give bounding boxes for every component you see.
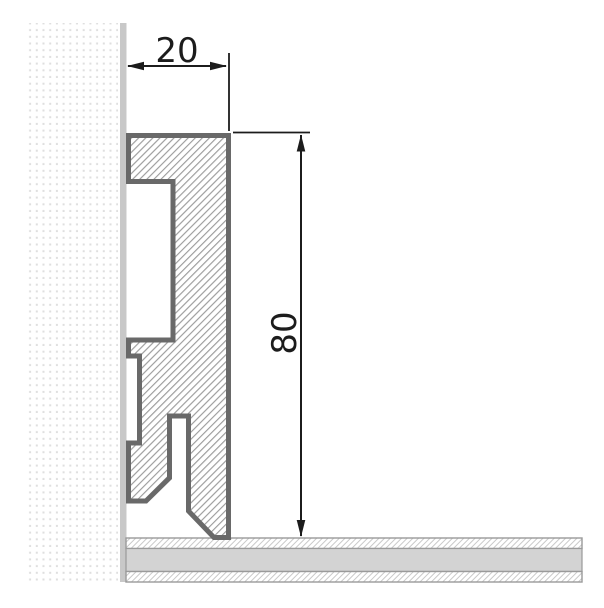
technical-drawing-svg: 20 80 bbox=[0, 0, 604, 604]
width-arrowhead-left bbox=[127, 62, 144, 71]
skirting-profile-drawing: 20 80 bbox=[0, 0, 604, 604]
wall-surface-line bbox=[120, 23, 127, 582]
floor-band-bottom bbox=[126, 572, 582, 583]
width-dimension-label: 20 bbox=[155, 31, 198, 71]
wall-section bbox=[27, 23, 127, 582]
height-arrowhead-top bbox=[297, 135, 306, 152]
floor-section bbox=[126, 538, 582, 582]
height-dimension-label: 80 bbox=[265, 311, 305, 354]
height-arrowhead-bottom bbox=[297, 520, 306, 537]
width-dimension: 20 bbox=[127, 31, 229, 131]
floor-band-top bbox=[126, 538, 582, 549]
width-arrowhead-right bbox=[210, 62, 227, 71]
height-dimension: 80 bbox=[233, 133, 310, 538]
wall-dotted-area bbox=[27, 23, 118, 582]
floor-band-middle bbox=[126, 549, 582, 572]
skirting-profile-outline bbox=[129, 136, 229, 538]
